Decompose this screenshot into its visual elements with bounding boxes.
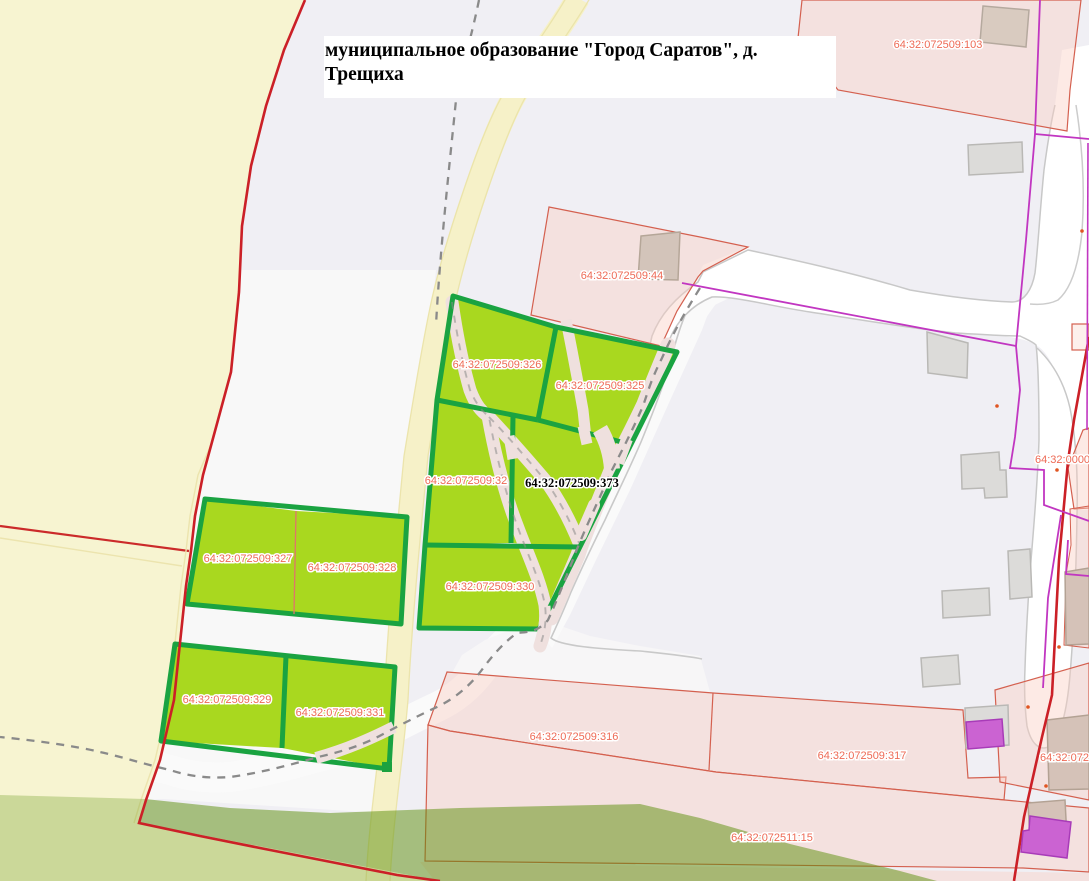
svg-text:64:32:072509:373: 64:32:072509:373 [525, 476, 619, 490]
svg-text:64:32:072509:330: 64:32:072509:330 [446, 581, 535, 593]
svg-text:64:32:072511:15: 64:32:072511:15 [731, 832, 813, 844]
svg-text:64:32:072: 64:32:072 [1040, 752, 1089, 764]
svg-text:64:32:072509:329: 64:32:072509:329 [183, 694, 272, 706]
svg-text:64:32:072509:317: 64:32:072509:317 [818, 750, 907, 762]
svg-text:64:32:072509:327: 64:32:072509:327 [204, 553, 293, 565]
svg-text:64:32:072509:32: 64:32:072509:32 [425, 475, 508, 487]
svg-text:64:32:072509:325: 64:32:072509:325 [556, 380, 645, 392]
svg-text:64:32:072509:44: 64:32:072509:44 [581, 270, 664, 282]
svg-text:муниципальное образование "Гор: муниципальное образование "Город Саратов… [325, 40, 758, 61]
svg-text:64:32:072509:326: 64:32:072509:326 [453, 359, 542, 371]
svg-text:64:32:072509:103: 64:32:072509:103 [894, 39, 983, 51]
svg-text:64:32:072509:331: 64:32:072509:331 [296, 707, 385, 719]
svg-text:Трещиха: Трещиха [325, 64, 404, 85]
svg-text:64:32:072509:328: 64:32:072509:328 [308, 562, 397, 574]
svg-text:64:32:00000: 64:32:00000 [1035, 454, 1089, 466]
svg-text:64:32:072509:316: 64:32:072509:316 [530, 731, 619, 743]
